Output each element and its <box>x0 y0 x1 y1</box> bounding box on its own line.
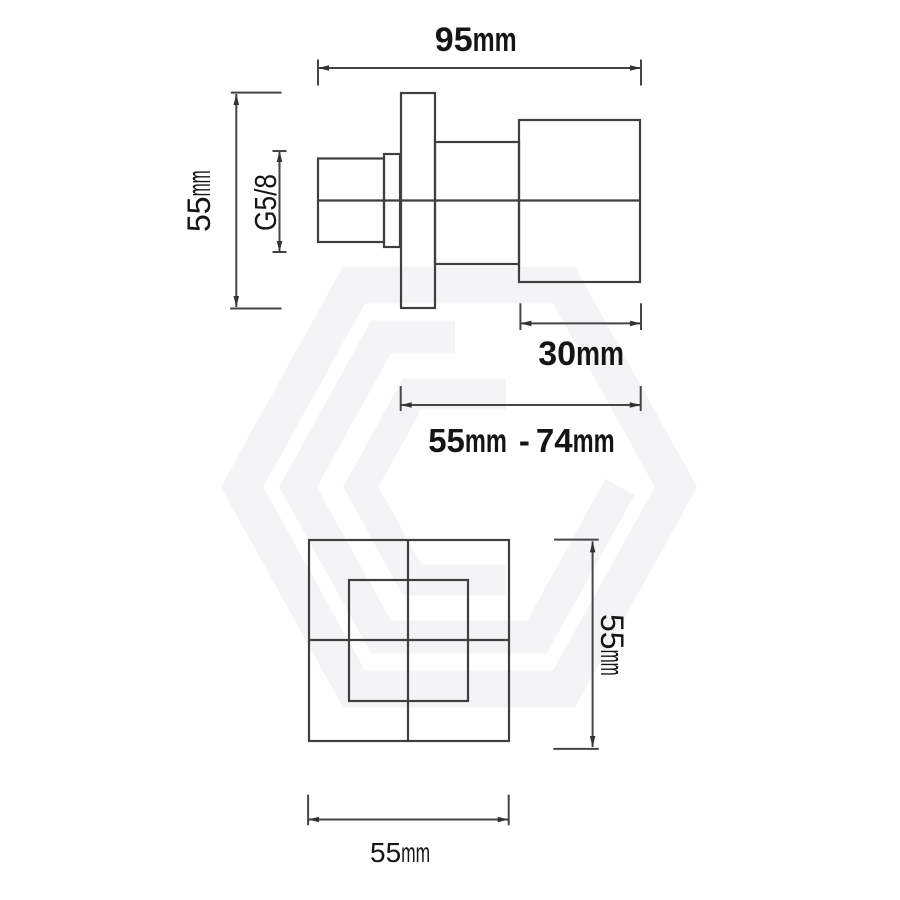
svg-text:55mm: 55mm <box>594 614 630 676</box>
svg-text:55mm: 55mm <box>181 170 217 232</box>
svg-text:G5/8: G5/8 <box>248 174 283 231</box>
svg-text:55mm: 55mm <box>370 837 430 868</box>
svg-text:95mm: 95mm <box>435 21 517 59</box>
svg-text:55mm-74mm: 55mm-74mm <box>428 422 614 459</box>
svg-text:30mm: 30mm <box>538 335 624 373</box>
